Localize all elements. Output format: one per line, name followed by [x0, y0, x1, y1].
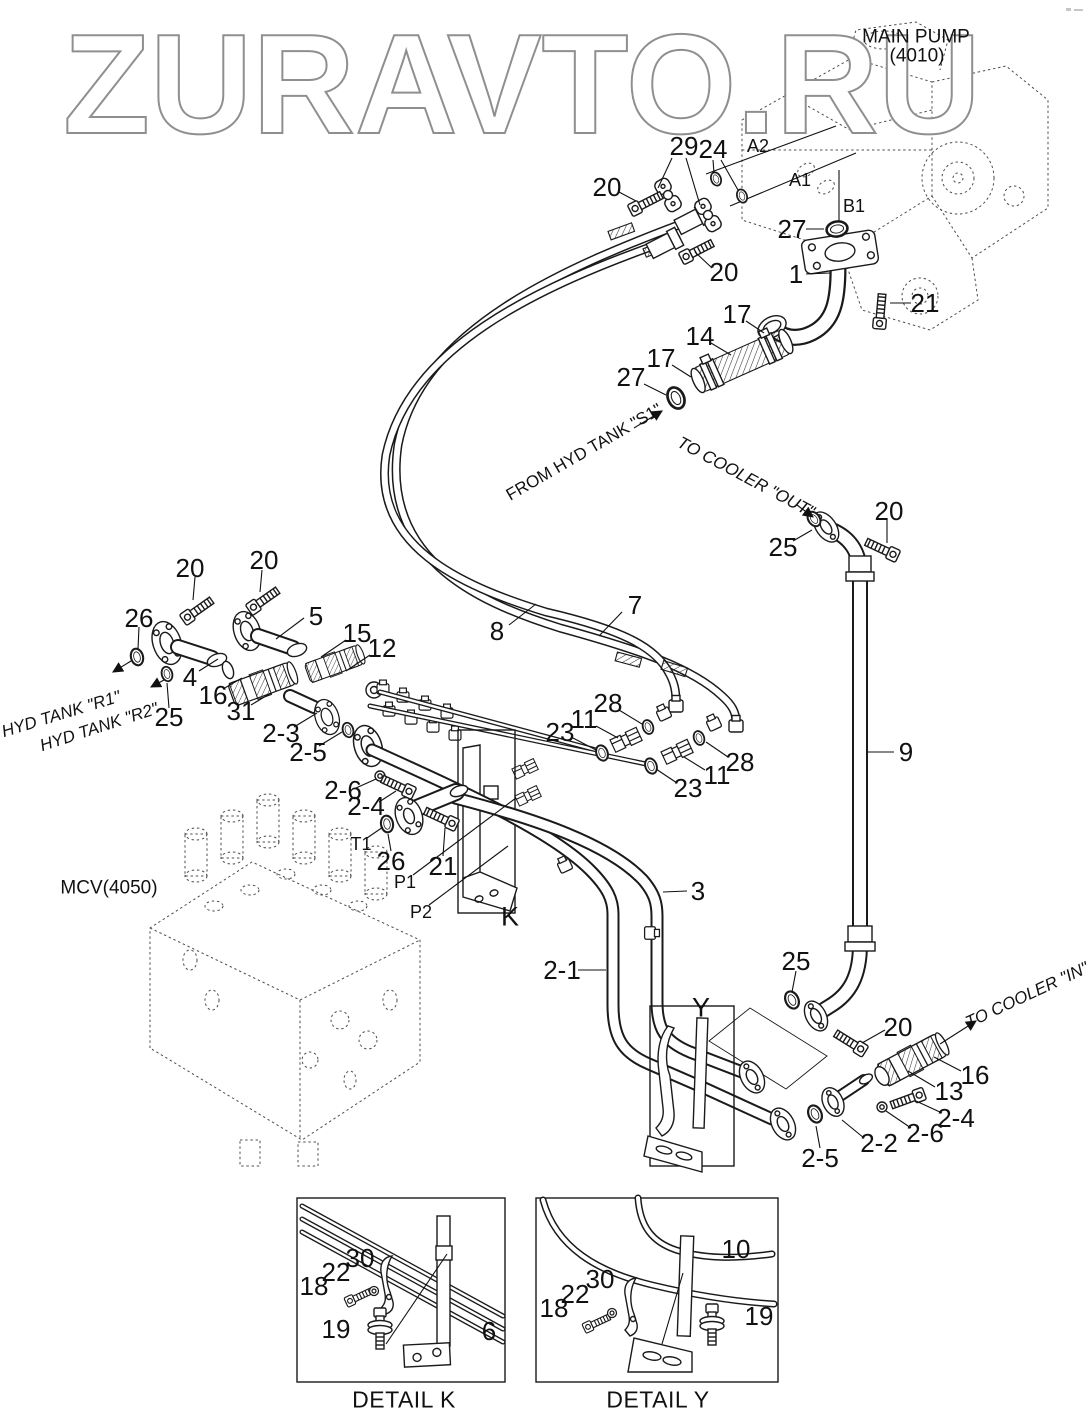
watermark-text: ZURAVTO.RU: [63, 5, 981, 164]
parts-diagram-page: ZURAVTO.RU 202924A2A1B1272012117141727MA…: [0, 0, 1088, 1428]
watermark-layer: ZURAVTO.RU: [0, 0, 1088, 1428]
